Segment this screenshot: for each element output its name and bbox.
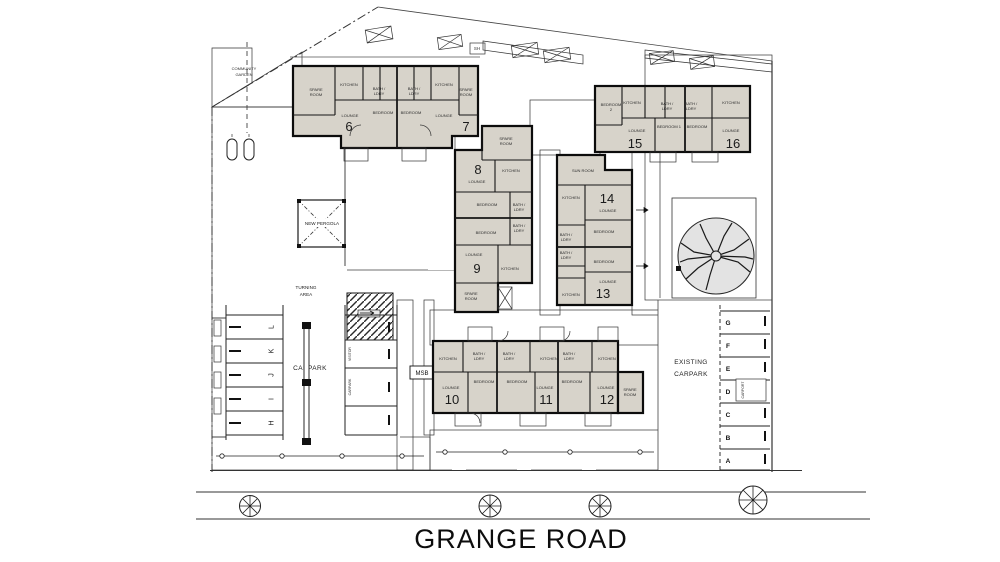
svg-text:LOUNGE: LOUNGE — [629, 128, 646, 133]
svg-text:KITCHEN: KITCHEN — [435, 82, 453, 87]
existing-carpark-label: EXISTING — [674, 359, 708, 366]
carpark-label: CARPARK — [293, 365, 327, 372]
street-tree — [589, 495, 611, 517]
svg-text:LDRY: LDRY — [474, 356, 485, 361]
bay-letter: J — [269, 373, 276, 377]
svg-text:KITCHEN: KITCHEN — [340, 82, 358, 87]
svg-text:LOUNGE: LOUNGE — [466, 252, 483, 257]
road-name: GRANGE ROAD — [414, 524, 628, 554]
svg-text:ROOM: ROOM — [310, 92, 322, 97]
building-units-15-16: BEDROOM 2 KITCHEN BATH / LDRY LOUNGE 15 … — [595, 86, 750, 162]
svg-text:BEDROOM: BEDROOM — [594, 259, 615, 264]
community-garden-label: COMMUNITY — [232, 66, 257, 71]
svg-text:LOUNGE: LOUNGE — [436, 113, 453, 118]
svg-text:BEDROOM: BEDROOM — [687, 124, 708, 129]
turning-area-label: AREA — [300, 292, 313, 297]
unit-number-12: 12 — [600, 392, 614, 407]
building-units-13-14: SUN ROOM KITCHEN 14 LOUNGE BEDROOM BATH … — [557, 155, 648, 305]
svg-text:KITCHEN: KITCHEN — [623, 100, 641, 105]
unit-number-6: 6 — [345, 119, 352, 134]
svg-text:KITCHEN: KITCHEN — [598, 356, 616, 361]
new-pergola: NEW PERGOLA — [297, 199, 346, 248]
unit-number-13: 13 — [596, 286, 610, 301]
svg-text:LOUNGE: LOUNGE — [600, 279, 617, 284]
shed-label: SH — [474, 46, 480, 51]
unit-number-15: 15 — [628, 136, 642, 151]
svg-text:LDRY: LDRY — [409, 91, 420, 96]
svg-text:LOUNGE: LOUNGE — [598, 385, 615, 390]
svg-text:BEDROOM: BEDROOM — [507, 379, 528, 384]
svg-text:LOUNGE: LOUNGE — [600, 208, 617, 213]
unit-number-11: 11 — [539, 392, 553, 407]
building-units-8-9: SPARE ROOM KITCHEN 8 LOUNGE BEDROOM BATH… — [455, 126, 532, 312]
unit-number-9: 9 — [473, 261, 480, 276]
svg-text:LOUNGE: LOUNGE — [723, 128, 740, 133]
msb-label: MSB — [415, 371, 428, 377]
svg-text:BEDROOM: BEDROOM — [477, 202, 498, 207]
bay-letter: A — [726, 458, 731, 465]
svg-text:LOUNGE: LOUNGE — [537, 385, 554, 390]
street-tree — [240, 496, 261, 517]
building-units-6-7: SPARE ROOM KITCHEN BATH / LDRY BEDROOM L… — [293, 66, 478, 161]
bay-letter: H — [269, 420, 276, 425]
bay-letter: G — [725, 320, 730, 327]
community-garden-label: GARDEN — [235, 72, 252, 77]
svg-text:ROOM: ROOM — [460, 92, 472, 97]
bay-letter: D — [726, 389, 731, 396]
bay-letter: I — [269, 398, 276, 400]
svg-text:ROOM: ROOM — [500, 141, 512, 146]
garden-bed — [244, 139, 254, 160]
garden-bed — [227, 139, 237, 160]
svg-text:ROOM: ROOM — [465, 296, 477, 301]
bay-letter: K — [269, 348, 276, 353]
unit-number-8: 8 — [474, 162, 481, 177]
existing-tree — [672, 198, 756, 298]
svg-text:ROOM: ROOM — [624, 392, 636, 397]
site-plan-drawing: SH COMMUNITY GARDEN NEW PERGOLA TURNING … — [0, 0, 1000, 562]
svg-text:BEDROOM: BEDROOM — [594, 229, 615, 234]
bay-letter: E — [726, 366, 731, 373]
unit-number-14: 14 — [600, 191, 614, 206]
bay-letter: B — [726, 435, 731, 442]
svg-text:LDRY: LDRY — [514, 207, 525, 212]
svg-text:BEDROOM: BEDROOM — [373, 110, 394, 115]
existing-carpark-label: CARPARK — [674, 371, 708, 378]
svg-text:LDRY: LDRY — [686, 106, 697, 111]
svg-text:LDRY: LDRY — [514, 228, 525, 233]
svg-text:LDRY: LDRY — [561, 255, 572, 260]
carport-label: CARPORT — [741, 381, 745, 399]
svg-text:KITCHEN: KITCHEN — [502, 168, 520, 173]
visitor-bay-label: VISITOR — [348, 347, 352, 361]
site-plan-page: SH COMMUNITY GARDEN NEW PERGOLA TURNING … — [0, 0, 1000, 562]
svg-text:KITCHEN: KITCHEN — [501, 266, 519, 271]
svg-text:KITCHEN: KITCHEN — [540, 356, 558, 361]
svg-text:BEDROOM: BEDROOM — [476, 230, 497, 235]
svg-text:BEDROOM: BEDROOM — [562, 379, 583, 384]
bay-letter: L — [269, 325, 276, 329]
svg-text:LDRY: LDRY — [374, 91, 385, 96]
street-tree — [479, 495, 501, 517]
svg-text:BEDROOM 1: BEDROOM 1 — [657, 124, 682, 129]
unit-number-7: 7 — [462, 119, 469, 134]
svg-text:LDRY: LDRY — [504, 356, 515, 361]
unit-number-16: 16 — [726, 136, 740, 151]
turning-area-label: TURNING — [296, 285, 317, 290]
pergola-label: NEW PERGOLA — [305, 221, 340, 226]
svg-text:KITCHEN: KITCHEN — [562, 195, 580, 200]
svg-text:LOUNGE: LOUNGE — [443, 385, 460, 390]
bay-letter: C — [726, 412, 731, 419]
svg-text:LOUNGE: LOUNGE — [342, 113, 359, 118]
unit-number-10: 10 — [445, 392, 459, 407]
svg-text:SUN ROOM: SUN ROOM — [572, 168, 594, 173]
bay-letter: F — [726, 343, 730, 350]
svg-text:KITCHEN: KITCHEN — [439, 356, 457, 361]
svg-text:BEDROOM: BEDROOM — [401, 110, 422, 115]
building-units-10-11-12: KITCHEN BATH / LDRY LOUNGE 10 BEDROOM BA… — [433, 327, 643, 426]
svg-text:KITCHEN: KITCHEN — [562, 292, 580, 297]
street-tree — [739, 486, 767, 514]
svg-text:KITCHEN: KITCHEN — [722, 100, 740, 105]
svg-text:LDRY: LDRY — [662, 106, 673, 111]
svg-text:BEDROOM: BEDROOM — [474, 379, 495, 384]
visitor-bay-label: CARPARK — [348, 378, 352, 395]
svg-text:LDRY: LDRY — [561, 237, 572, 242]
svg-text:LDRY: LDRY — [564, 356, 575, 361]
svg-text:LOUNGE: LOUNGE — [469, 179, 486, 184]
